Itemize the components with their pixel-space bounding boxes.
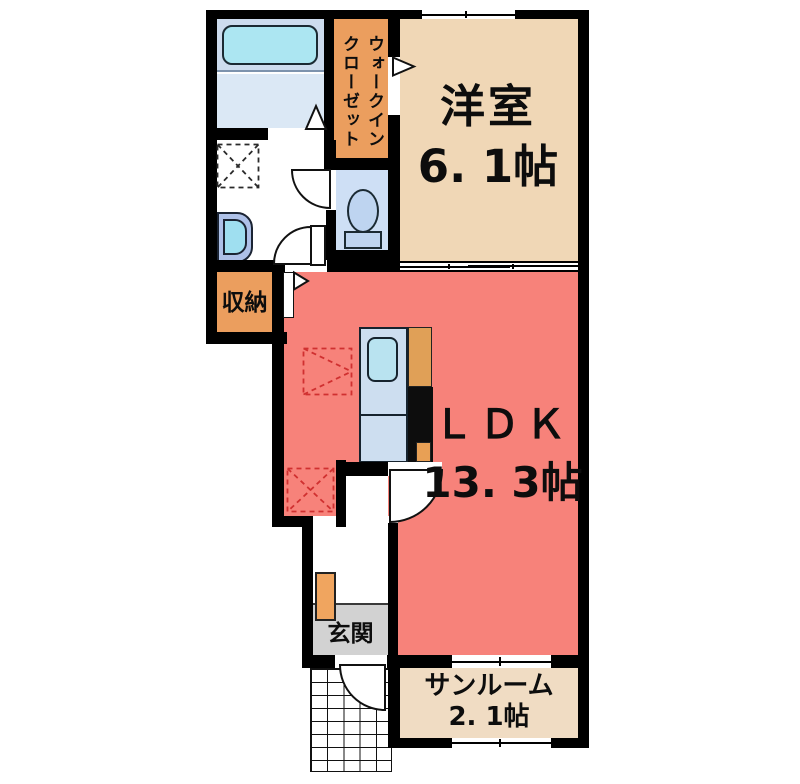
bathroom-lower-floor xyxy=(217,74,324,128)
sunroom-size: 2. 1帖 xyxy=(400,701,578,733)
floor-plan: { "plan": { "type": "apartment-floorplan… xyxy=(0,0,800,784)
wall-hall-top xyxy=(336,462,388,476)
wall-hall-right xyxy=(388,523,398,655)
toilet-bowl xyxy=(347,189,379,233)
washbasin-bowl xyxy=(223,219,247,255)
wall-left xyxy=(206,10,217,344)
kitchen-sink xyxy=(367,337,398,382)
wall-right xyxy=(578,10,589,748)
sunroom-window-top xyxy=(450,655,553,668)
bathtub xyxy=(222,25,318,65)
western-room-size: 6. 1帖 xyxy=(398,138,578,196)
walk-in-closet-label: ウォークイン クローゼット xyxy=(337,24,386,160)
western-room-window xyxy=(420,10,517,19)
ldk-size: 13. 3帖 xyxy=(415,458,590,508)
ldk-floor-lower xyxy=(398,516,578,655)
wall-entrance-left xyxy=(302,527,313,668)
toilet-tank xyxy=(344,231,382,249)
bathroom-door-gap xyxy=(268,128,324,140)
entrance-label: 玄関 xyxy=(313,619,388,649)
sunroom-label: サンルーム xyxy=(400,670,578,702)
hall-floor-upper xyxy=(346,476,388,516)
front-door-gap xyxy=(335,655,387,668)
wall-toilet-bottom xyxy=(336,250,388,262)
washroom-door-gap xyxy=(285,260,327,272)
kitchen-cabinet-top xyxy=(408,327,432,387)
wall-bath-bottom xyxy=(206,128,268,140)
wall-sunroom-left xyxy=(388,668,400,748)
sliding-door-western-ldk xyxy=(400,261,578,272)
ldk-label: ＬＤＫ xyxy=(415,400,590,450)
sunroom-window-bottom xyxy=(450,738,553,748)
storage-label: 収納 xyxy=(217,288,272,318)
exterior-stairs xyxy=(310,668,392,772)
wall-alcove-bottom xyxy=(272,516,313,527)
storage-door-leaf xyxy=(283,272,294,318)
kitchen-counter-divider xyxy=(361,414,406,416)
western-room-label: 洋室 xyxy=(398,78,578,136)
shoe-cabinet xyxy=(315,572,336,621)
toilet-door-gap xyxy=(326,170,336,210)
